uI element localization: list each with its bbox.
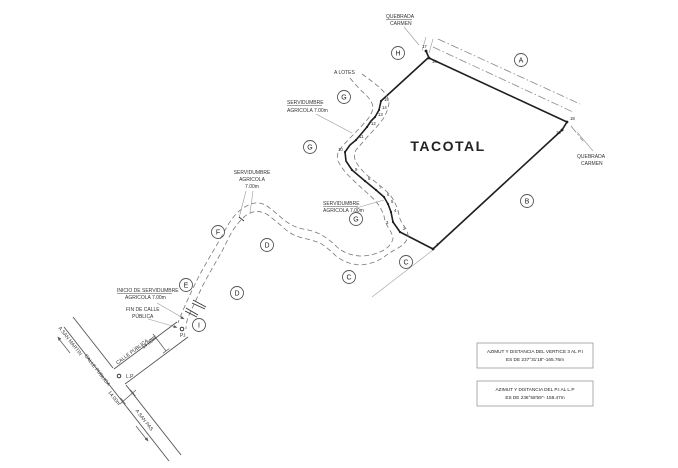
vertex-dot-10 xyxy=(344,151,346,153)
zone-letter: C xyxy=(403,260,408,267)
vertex-dot-16 xyxy=(428,57,431,60)
vertex-label: 11 xyxy=(359,134,364,139)
a-lotes-label: A LOTES xyxy=(334,70,356,76)
zone-letter: D xyxy=(234,291,239,298)
fin-line1: FIN DE CALLE xyxy=(126,307,160,313)
zone-marker-c2: C xyxy=(343,271,356,284)
inicio-leader xyxy=(157,303,183,318)
quebrada-carmen-top: QUEBRADA CARMEN xyxy=(386,14,580,112)
servidumbre-top-line1: SERVIDUMBRE xyxy=(287,100,324,106)
vertex-label: 18 xyxy=(570,116,575,121)
servidumbre-left-leader-2 xyxy=(250,191,253,213)
vertex-dot-7 xyxy=(375,189,377,191)
boundary-18-19 xyxy=(562,122,567,130)
zone-marker-f: F xyxy=(212,226,225,239)
zone-letter: A xyxy=(519,58,524,65)
zone-letter: C xyxy=(346,275,351,282)
san-pas-arrow-line xyxy=(136,426,147,440)
calle-publica-main-label: CALLE PÚBLICA xyxy=(83,353,113,388)
main-road-sw-edge xyxy=(64,327,169,461)
hatch-stroke-1 xyxy=(185,311,197,317)
vertex-dot-8 xyxy=(364,180,366,182)
quebrada-right-label-2: CARMEN xyxy=(581,161,603,167)
note-box-frame xyxy=(477,381,593,406)
quebrada-top-leader xyxy=(404,27,419,45)
zone-letter: I xyxy=(198,323,200,330)
vertex-label: 14 xyxy=(382,105,387,110)
survey-plan-canvas: QUEBRADA CARMEN QUEBRADA CARMEN xyxy=(0,0,678,468)
zone-letter: H xyxy=(395,51,400,58)
note-2-line-1: AZIMUT Y DISTANCIA DEL P.I AL L.P xyxy=(496,387,575,392)
inicio-line1: INICIO DE SERVIDUMBRE xyxy=(117,288,179,294)
zone-marker-a: A xyxy=(515,54,528,67)
note-2-line-2: ES DE 236°58'59''- 158.47m xyxy=(505,395,564,400)
vertex-dot-17 xyxy=(425,50,428,53)
main-dim-label: 14.00m xyxy=(106,390,121,407)
quebrada-carmen-right: QUEBRADA CARMEN xyxy=(571,126,606,167)
hatch-stroke-2 xyxy=(186,308,198,315)
vertex-dot-11 xyxy=(355,139,357,141)
zone-marker-i: I xyxy=(193,319,206,332)
pi-point-label: P.I xyxy=(180,333,185,339)
zone-marker-e: E xyxy=(180,279,193,292)
calle-publica-branch-label: CALLE PÚBLICA xyxy=(115,337,151,366)
parcel-boundary: 1 2 3 4 5 6 7 8 9 10 11 12 13 14 15 16 1… xyxy=(338,44,575,297)
zone-letter: F xyxy=(216,230,220,237)
servidumbre-left-leader-1 xyxy=(239,191,246,218)
vertex-dot-3 xyxy=(392,221,394,223)
quebrada-right-label-1: QUEBRADA xyxy=(577,154,606,160)
zone-letter: G xyxy=(307,145,312,152)
vertex-label: 4 xyxy=(394,208,397,213)
quebrada-top-label-1: QUEBRADA xyxy=(386,14,415,20)
zone-marker-h: H xyxy=(392,47,405,60)
servidumbre-mid-line1: SERVIDUMBRE xyxy=(323,201,360,207)
servidumbre-left-line1: SERVIDUMBRE xyxy=(234,170,271,176)
quebrada-right-tail xyxy=(571,126,583,141)
zone-letter: E xyxy=(184,283,189,290)
azimuth-note-box-1: AZIMUT Y DISTANCIA DEL VERTICE 3 AL P.I … xyxy=(477,343,593,368)
zone-letter: D xyxy=(264,243,269,250)
vertex-label: 9 xyxy=(355,167,358,172)
pi-point-marker xyxy=(180,327,184,331)
zone-marker-b: B xyxy=(521,195,534,208)
note-box-frame xyxy=(477,343,593,368)
servidumbre-label-top: SERVIDUMBRE AGRICOLA 7.00m xyxy=(287,100,352,133)
vertex-dot-2 xyxy=(399,231,401,233)
quebrada-right-leader xyxy=(577,132,593,151)
zone-marker-g3: G xyxy=(350,213,363,226)
zone-marker-c1: C xyxy=(400,256,413,269)
servidumbre-left-line2: AGRICOLA xyxy=(239,177,266,183)
hatch-stroke-3 xyxy=(192,303,205,309)
zone-marker-g2: G xyxy=(304,141,317,154)
main-dim-line xyxy=(120,390,136,404)
vertex-dot-15 xyxy=(380,100,382,102)
quebrada-top-label-2: CARMEN xyxy=(390,21,412,27)
vertex-label: 17 xyxy=(422,44,427,49)
vertex-dot-14 xyxy=(378,109,380,111)
branch-dim-tick-2 xyxy=(163,349,169,354)
transition-hatch-marks xyxy=(185,300,206,317)
vertex-dot-5 xyxy=(387,203,389,205)
vertex-label: 12 xyxy=(371,121,376,126)
servidumbre-label-mid: SERVIDUMBRE AGRICOLA 7.00m xyxy=(323,200,384,214)
fin-line2: PÚBLICA xyxy=(132,313,154,320)
vertex-dot-18 xyxy=(566,121,569,124)
parcel-name: TACOTAL xyxy=(410,138,485,154)
quebrada-line-1 xyxy=(433,47,573,112)
vertex-label: 13 xyxy=(378,112,383,117)
servidumbre-mid-leader xyxy=(356,200,384,208)
zone-marker-d2: D xyxy=(231,287,244,300)
vertex-dot-6 xyxy=(383,196,385,198)
lp-point-marker xyxy=(117,374,121,378)
servidumbre-top-line2: AGRICOLA 7.00m xyxy=(287,108,328,114)
vertex-label: 19 xyxy=(556,130,561,135)
branch-road-lower-edge xyxy=(125,337,188,384)
quebrada-bank-tick-2 xyxy=(429,39,433,53)
hatch-stroke-4 xyxy=(193,300,206,307)
san-martin-arrowhead xyxy=(58,337,62,341)
road-network: L.P P.I 14.00m 14.00m CALLE PÚBLICA CALL… xyxy=(57,317,188,461)
vertex-dot-19 xyxy=(561,129,564,132)
fin-arrowhead xyxy=(173,325,177,328)
zone-letter: G xyxy=(353,217,358,224)
zone-marker-g1: G xyxy=(338,91,351,104)
zone-marker-d1: D xyxy=(261,239,274,252)
vertex-dot-9 xyxy=(351,169,353,171)
inicio-line2: AGRICOLA 7.00m xyxy=(125,295,166,301)
azimuth-note-box-2: AZIMUT Y DISTANCIA DEL P.I AL L.P ES DE … xyxy=(477,381,593,406)
vertex-label: 16 xyxy=(432,59,437,64)
vertex-dot-12 xyxy=(366,126,368,128)
zone-letter: G xyxy=(341,95,346,102)
vertex-label: 15 xyxy=(384,97,389,102)
vertex-dot-4 xyxy=(390,211,392,213)
boundary-1-2 xyxy=(400,232,433,249)
note-1-line-2: ES DE 237°31'18''-165.76m xyxy=(506,357,564,362)
note-1-line-1: AZIMUT Y DISTANCIA DEL VERTICE 3 AL P.I xyxy=(487,349,583,354)
survey-plan-drawing: QUEBRADA CARMEN QUEBRADA CARMEN xyxy=(0,0,678,468)
servidumbre-edge-west xyxy=(178,78,393,323)
main-road-ne-edge-lower xyxy=(126,385,181,455)
servidumbre-left-line3: 7.00m xyxy=(245,184,259,190)
zone-letter: B xyxy=(525,199,530,206)
zone-markers: H A G G G B C C xyxy=(180,47,534,332)
vertex-dot-13 xyxy=(374,116,376,118)
servidumbre-top-leader xyxy=(316,114,352,133)
boundary-16-18 xyxy=(429,58,567,122)
vertex-dot-1 xyxy=(432,248,435,251)
lp-point-label: L.P xyxy=(126,374,134,380)
